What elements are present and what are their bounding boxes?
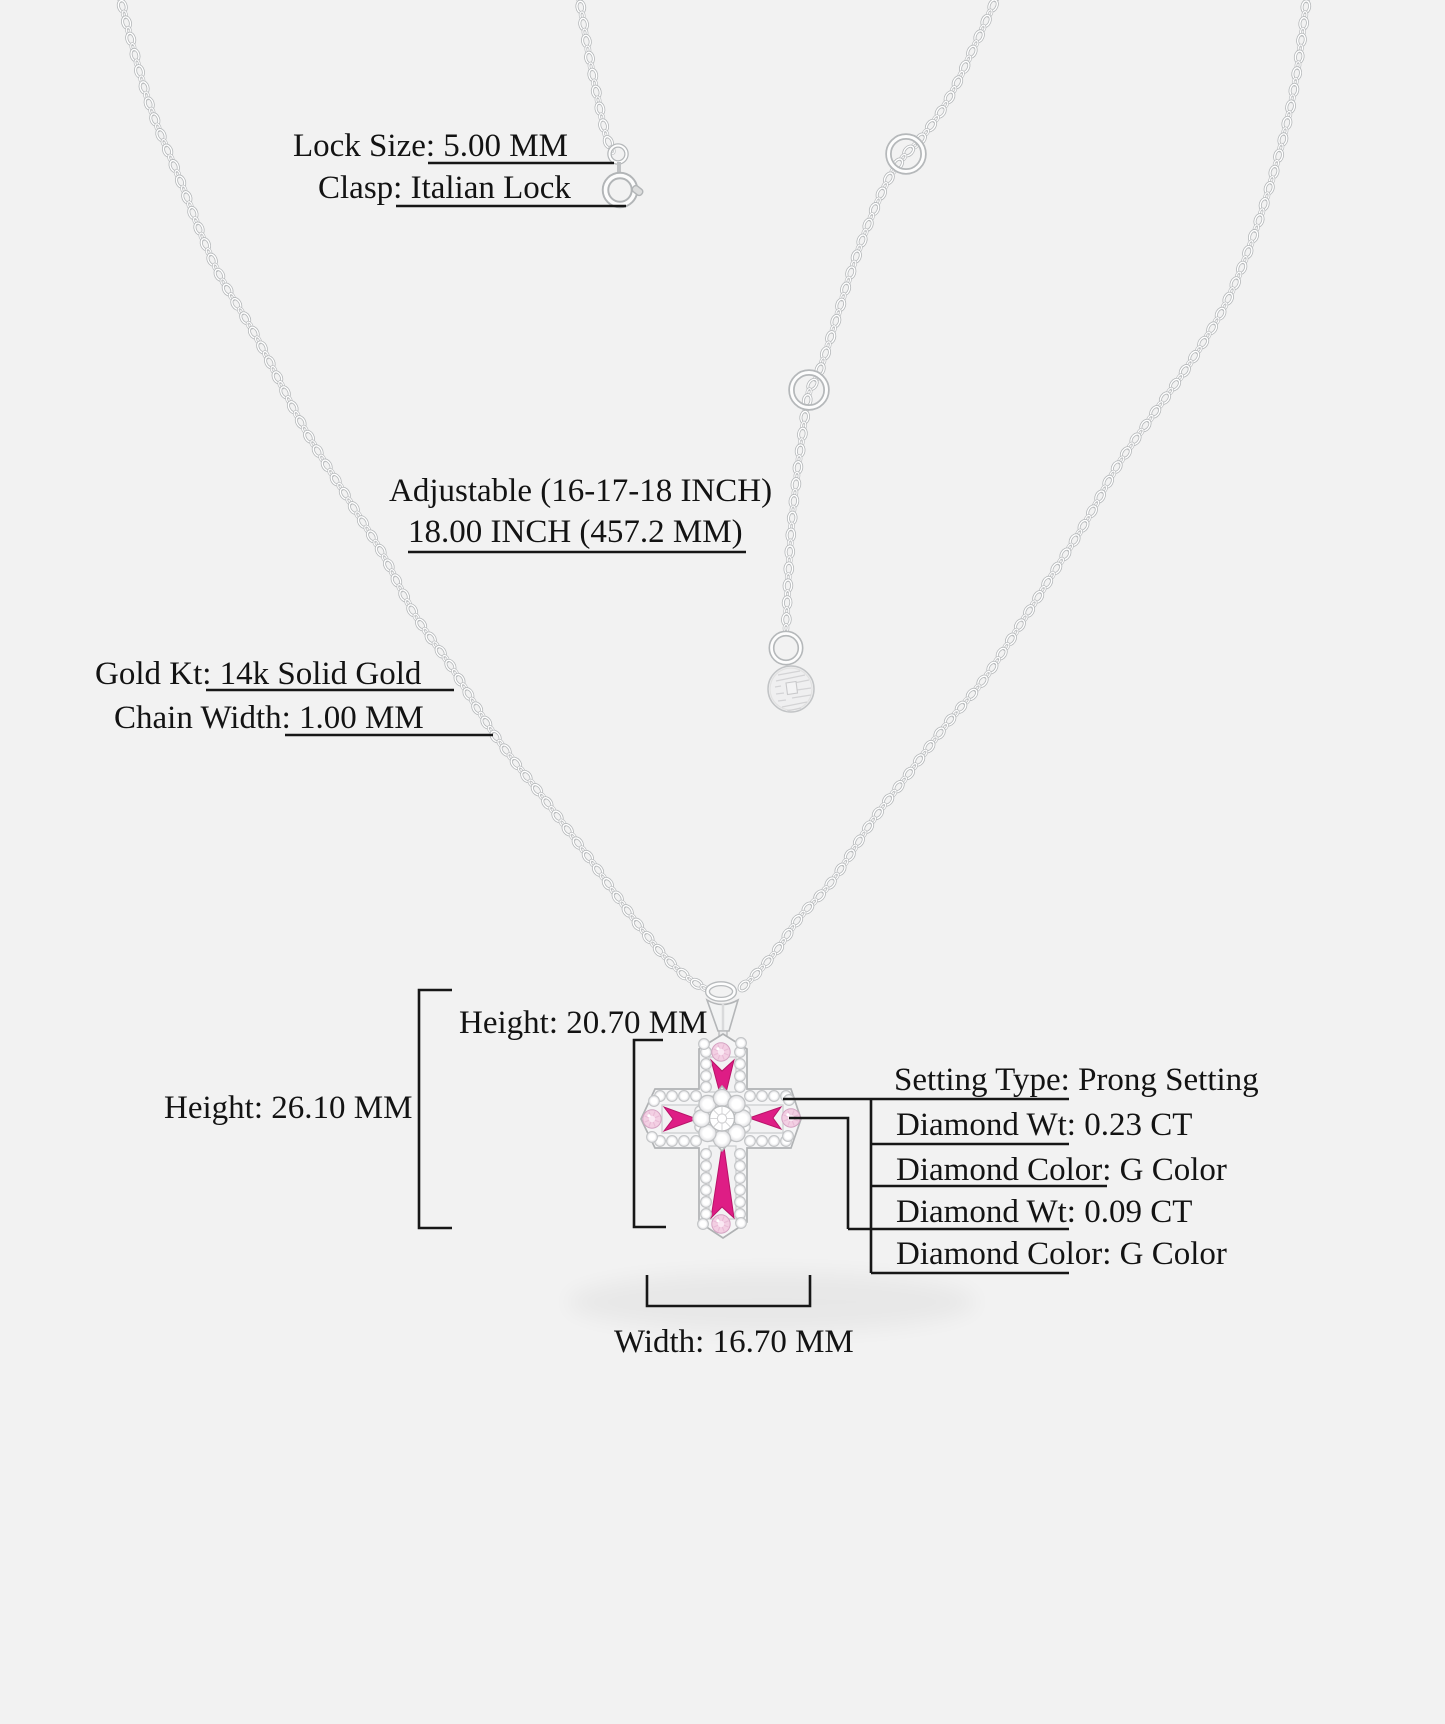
svg-text:Lock Size: 5.00 MM: Lock Size: 5.00 MM <box>293 128 568 164</box>
svg-text:Gold Kt: 14k Solid Gold: Gold Kt: 14k Solid Gold <box>95 656 422 692</box>
svg-text:Height: 26.10 MM: Height: 26.10 MM <box>164 1090 412 1126</box>
svg-text:Diamond Wt: 0.23 CT: Diamond Wt: 0.23 CT <box>896 1107 1192 1143</box>
svg-text:Clasp: Italian Lock: Clasp: Italian Lock <box>318 170 571 206</box>
svg-text:Height: 20.70 MM: Height: 20.70 MM <box>459 1005 707 1041</box>
svg-text:Width: 16.70 MM: Width: 16.70 MM <box>614 1324 854 1360</box>
svg-text:Setting Type: Prong Setting: Setting Type: Prong Setting <box>894 1062 1259 1098</box>
svg-text:Diamond Color: G Color: Diamond Color: G Color <box>896 1236 1227 1272</box>
svg-text:Diamond Color: G Color: Diamond Color: G Color <box>896 1152 1227 1188</box>
svg-text:Diamond Wt: 0.09 CT: Diamond Wt: 0.09 CT <box>896 1194 1192 1230</box>
svg-text:Adjustable (16-17-18 INCH): Adjustable (16-17-18 INCH) <box>389 473 772 509</box>
svg-text:Chain Width: 1.00 MM: Chain Width: 1.00 MM <box>114 700 424 736</box>
svg-text:18.00 INCH (457.2 MM): 18.00 INCH (457.2 MM) <box>408 514 743 550</box>
